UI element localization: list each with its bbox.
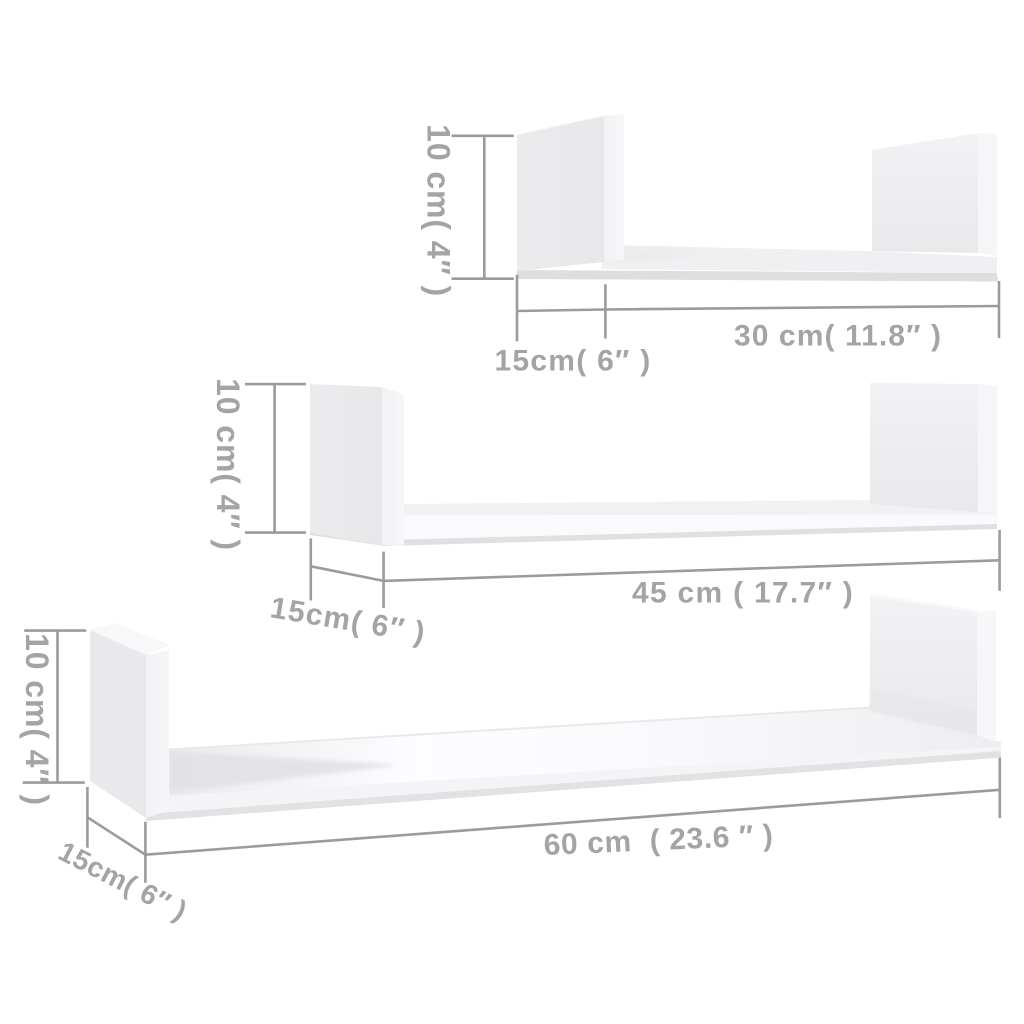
svg-text:30 cm( 11.8″ ): 30 cm( 11.8″ )	[734, 320, 942, 353]
svg-text:15cm( 6″ ): 15cm( 6″ )	[494, 345, 651, 378]
svg-text:15cm( 6″ ): 15cm( 6″ )	[53, 835, 192, 926]
svg-text:10 cm( 4″ ): 10 cm( 4″ )	[421, 124, 457, 297]
svg-text:45 cm ( 17.7″ ): 45 cm ( 17.7″ )	[632, 577, 854, 610]
svg-text:60 cm ( 23.6 ″ ): 60 cm ( 23.6 ″ )	[543, 819, 774, 862]
svg-text:10 cm( 4″ ): 10 cm( 4″ )	[210, 378, 246, 551]
svg-text:15cm( 6″ ): 15cm( 6″ )	[268, 591, 428, 649]
svg-text:10 cm( 4″ ): 10 cm( 4″ )	[19, 633, 55, 806]
